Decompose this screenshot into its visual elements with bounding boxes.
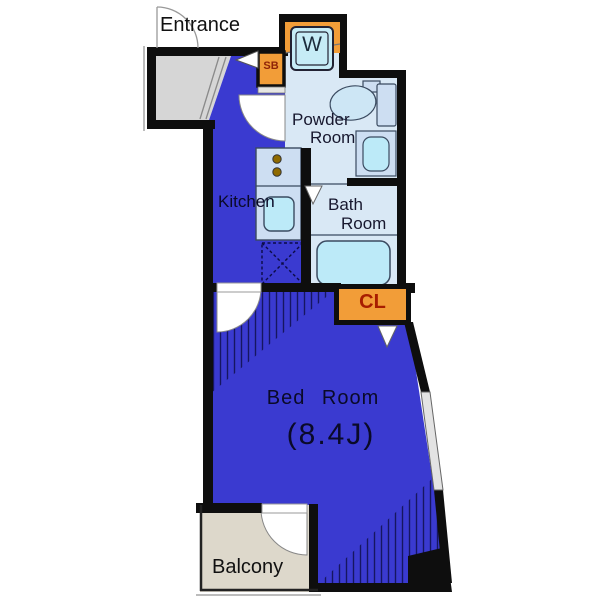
stove-burner-icon [273, 155, 281, 163]
powder-room-label-2: Room [310, 129, 355, 147]
floorplan: Entrance W SB Powder Room Kitchen Bath R… [0, 0, 600, 600]
balcony-label: Balcony [212, 557, 283, 578]
entrance-label: Entrance [160, 15, 240, 36]
bedroom-size-label: (8.4J) [231, 419, 431, 451]
shoe-box-base [258, 87, 285, 93]
washer-label: W [291, 34, 333, 56]
kitchen-label: Kitchen [218, 193, 275, 211]
floorplan-drawing [0, 0, 600, 600]
vanity-basin-icon [363, 137, 389, 171]
shoe-box-label: SB [257, 61, 285, 73]
bath-room-label-2: Room [341, 215, 386, 233]
closet-label: CL [340, 292, 405, 313]
toilet-tank-icon [377, 84, 396, 126]
bedroom-label: Bed Room [223, 388, 423, 409]
stove-burner-icon [273, 168, 281, 176]
bathtub-icon [317, 241, 390, 285]
bath-room-label-1: Bath [328, 196, 363, 214]
powder-room-label-1: Powder [292, 111, 350, 129]
